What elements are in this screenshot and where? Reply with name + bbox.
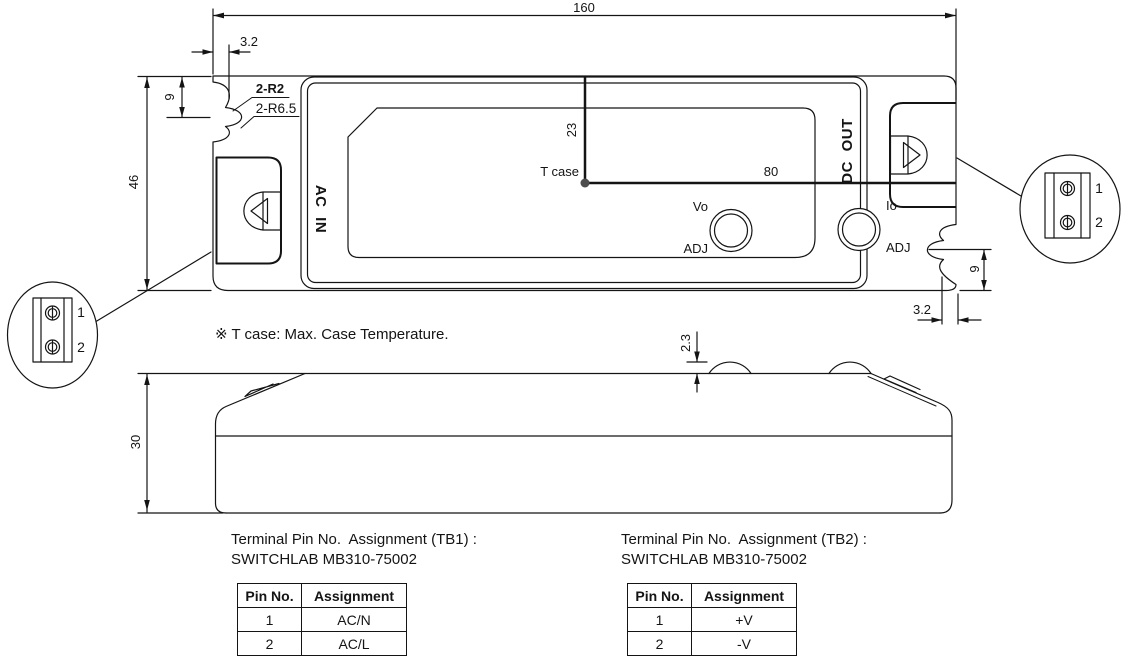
table-row: 1 +V: [628, 608, 797, 632]
tb2-subtitle: SWITCHLAB MB310-75002: [621, 551, 807, 568]
table-row: 2 -V: [628, 632, 797, 656]
dim-bump-height: 2.3: [679, 334, 693, 352]
callout-left-pin-2: 2: [77, 340, 85, 354]
tb2-pin-2: 2: [628, 632, 692, 656]
screw-icon: [1061, 216, 1075, 230]
tb1-assignment-1: AC/N: [302, 608, 407, 632]
dim-tcase-to-right: 80: [764, 165, 778, 179]
dc-out-label: DC OUT: [841, 118, 855, 184]
wire-clamp-icon: [244, 192, 281, 230]
dim-case-height: 30: [129, 435, 143, 449]
ac-in-label: AC IN: [313, 185, 327, 233]
tb2-assignment-1: +V: [692, 608, 797, 632]
tcase-label: T case: [540, 165, 579, 179]
ac-terminal-block: [217, 158, 282, 264]
callout-right: [957, 155, 1120, 263]
tb1-assignment-2: AC/L: [302, 632, 407, 656]
side-bracket-tabs: [245, 376, 920, 397]
tb1-pin-table: Pin No. Assignment 1 AC/N 2 AC/L: [237, 583, 407, 656]
wire-clamp-icon: [891, 136, 928, 174]
tb2-header-assignment: Assignment: [692, 584, 797, 608]
tb1-pin-1: 1: [238, 608, 302, 632]
io-label: Io: [886, 199, 911, 213]
screw-icon: [46, 340, 60, 354]
radius-label-r2: 2-R2: [256, 82, 284, 96]
vo-label: Vo: [683, 200, 708, 214]
screw-icon: [46, 306, 60, 320]
table-row: 2 AC/L: [238, 632, 407, 656]
table-row: 1 AC/N: [238, 608, 407, 632]
callout-right-pin-2: 2: [1095, 215, 1103, 229]
tb1-header-assignment: Assignment: [302, 584, 407, 608]
tb1-title: Terminal Pin No. Assignment (TB1) :: [231, 531, 477, 548]
dim-slot-bottom: 9: [968, 265, 982, 272]
tb2-assignment-2: -V: [692, 632, 797, 656]
adj-label: ADJ: [886, 241, 911, 255]
tb2-header-pin: Pin No.: [628, 584, 692, 608]
tb1-header-pin: Pin No.: [238, 584, 302, 608]
tb1-subtitle: SWITCHLAB MB310-75002: [231, 551, 417, 568]
dim-slot-offset-top: 3.2: [240, 35, 258, 49]
mechanical-drawing: 160 46 9 3.2 2-R2 2-R6.5 23 80 T case AC…: [0, 0, 1129, 667]
dimension-lines-side-view: [138, 332, 707, 513]
tb2-title: Terminal Pin No. Assignment (TB2) :: [621, 531, 867, 548]
tcase-point: [581, 179, 590, 188]
callout-right-pin-1: 1: [1095, 181, 1103, 195]
dim-slot-offset-bottom: 3.2: [913, 303, 931, 317]
tb2-pin-1: 1: [628, 608, 692, 632]
callout-left: [8, 252, 212, 388]
adj-label: ADJ: [683, 242, 708, 256]
vo-adj-label: Vo ADJ: [683, 172, 708, 284]
tb1-pin-2: 2: [238, 632, 302, 656]
vo-adj-pot: [710, 210, 752, 252]
io-adj-pot: [838, 209, 880, 251]
dim-overall-height: 46: [127, 175, 141, 189]
callout-left-pin-1: 1: [77, 305, 85, 319]
dim-overall-width: 160: [573, 1, 595, 15]
dim-tcase-from-top: 23: [565, 123, 579, 137]
radius-label-r65: 2-R6.5: [256, 102, 297, 116]
screw-icon: [1061, 182, 1075, 196]
io-adj-label: Io ADJ: [886, 171, 911, 283]
dim-slot-top: 9: [163, 93, 177, 100]
tcase-note: ※ T case: Max. Case Temperature.: [215, 328, 449, 342]
tb2-pin-table: Pin No. Assignment 1 +V 2 -V: [627, 583, 797, 656]
side-view-outline: [138, 362, 952, 513]
